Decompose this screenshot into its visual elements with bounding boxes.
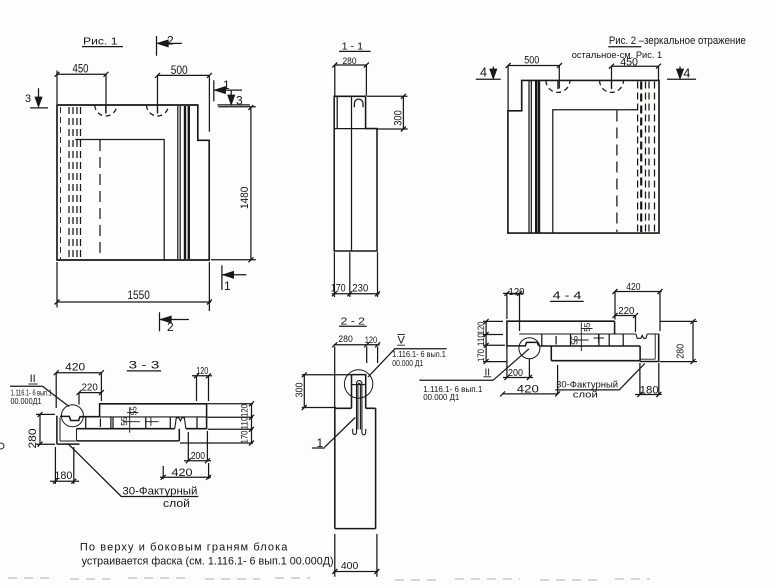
svg-text:110: 110 xyxy=(240,417,251,430)
svg-text:Рис. 2 –зеркальное отражение: Рис. 2 –зеркальное отражение xyxy=(609,35,746,47)
svg-text:120: 120 xyxy=(240,404,251,417)
svg-text:110: 110 xyxy=(476,333,487,346)
svg-text:2: 2 xyxy=(167,320,174,334)
svg-text:II: II xyxy=(485,367,491,378)
svg-text:400: 400 xyxy=(341,560,359,572)
svg-text:1: 1 xyxy=(317,436,324,450)
svg-text:280: 280 xyxy=(675,344,687,359)
svg-text:устраивается фаска (см. 1.11: устраивается фаска (см. 1.116.1- 6 вып.1… xyxy=(82,555,334,567)
svg-text:По верху и боковым граням блок: По верху и боковым граням блока xyxy=(80,541,288,553)
svg-text:30-Фактурный: 30-Фактурный xyxy=(122,486,197,498)
svg-text:500: 500 xyxy=(171,65,188,77)
svg-text:450: 450 xyxy=(620,56,638,68)
svg-text:180: 180 xyxy=(54,470,72,482)
svg-text:120: 120 xyxy=(365,335,378,346)
svg-text:300: 300 xyxy=(294,382,306,397)
svg-text:220: 220 xyxy=(82,383,99,394)
svg-text:280: 280 xyxy=(343,56,357,67)
svg-text:500: 500 xyxy=(524,55,539,67)
svg-text:1480: 1480 xyxy=(239,187,251,210)
svg-text:55: 55 xyxy=(120,416,129,425)
svg-text:II: II xyxy=(30,373,36,385)
svg-text:55: 55 xyxy=(583,322,592,331)
svg-text:280: 280 xyxy=(338,334,353,345)
svg-text:120: 120 xyxy=(509,287,525,298)
svg-text:300: 300 xyxy=(392,110,404,126)
svg-text:450: 450 xyxy=(73,64,89,76)
svg-text:170: 170 xyxy=(331,282,346,294)
svg-text:1550: 1550 xyxy=(127,290,149,302)
svg-text:420: 420 xyxy=(172,467,193,479)
svg-text:170: 170 xyxy=(476,349,487,362)
svg-text:230: 230 xyxy=(352,282,368,294)
svg-text:420: 420 xyxy=(65,362,85,374)
svg-text:200: 200 xyxy=(508,368,523,379)
svg-text:280: 280 xyxy=(27,429,39,449)
svg-text:остальное-см. Рис. 1: остальное-см. Рис. 1 xyxy=(572,50,663,61)
svg-text:180: 180 xyxy=(640,384,659,396)
svg-text:120: 120 xyxy=(476,322,487,335)
svg-text:00.000 Д1: 00.000 Д1 xyxy=(423,392,459,402)
svg-text:420: 420 xyxy=(517,383,539,395)
svg-text:слой: слой xyxy=(573,390,598,401)
svg-text:1: 1 xyxy=(224,279,231,293)
svg-text:слой: слой xyxy=(163,498,190,510)
svg-text:220: 220 xyxy=(618,306,635,317)
svg-text:3: 3 xyxy=(236,94,243,108)
svg-text:Рис. 1: Рис. 1 xyxy=(83,35,118,47)
svg-text:1: 1 xyxy=(223,78,230,92)
svg-text:1 - 1: 1 - 1 xyxy=(342,41,364,53)
svg-text:55: 55 xyxy=(571,335,580,344)
svg-text:2 - 2: 2 - 2 xyxy=(341,315,366,327)
svg-text:200: 200 xyxy=(191,451,206,462)
svg-text:00.000 Д1: 00.000 Д1 xyxy=(392,358,423,368)
svg-text:V: V xyxy=(398,335,406,347)
svg-text:4 - 4: 4 - 4 xyxy=(553,290,582,302)
svg-text:170: 170 xyxy=(240,431,251,444)
svg-text:4: 4 xyxy=(480,66,487,80)
svg-text:120: 120 xyxy=(196,366,208,377)
svg-text:4: 4 xyxy=(683,66,690,80)
svg-text:3 - 3: 3 - 3 xyxy=(129,360,160,372)
svg-text:420: 420 xyxy=(626,282,641,293)
svg-text:55: 55 xyxy=(129,406,138,415)
svg-text:00.000Д1: 00.000Д1 xyxy=(11,396,42,406)
svg-text:2: 2 xyxy=(167,34,174,48)
svg-text:3: 3 xyxy=(25,93,31,105)
